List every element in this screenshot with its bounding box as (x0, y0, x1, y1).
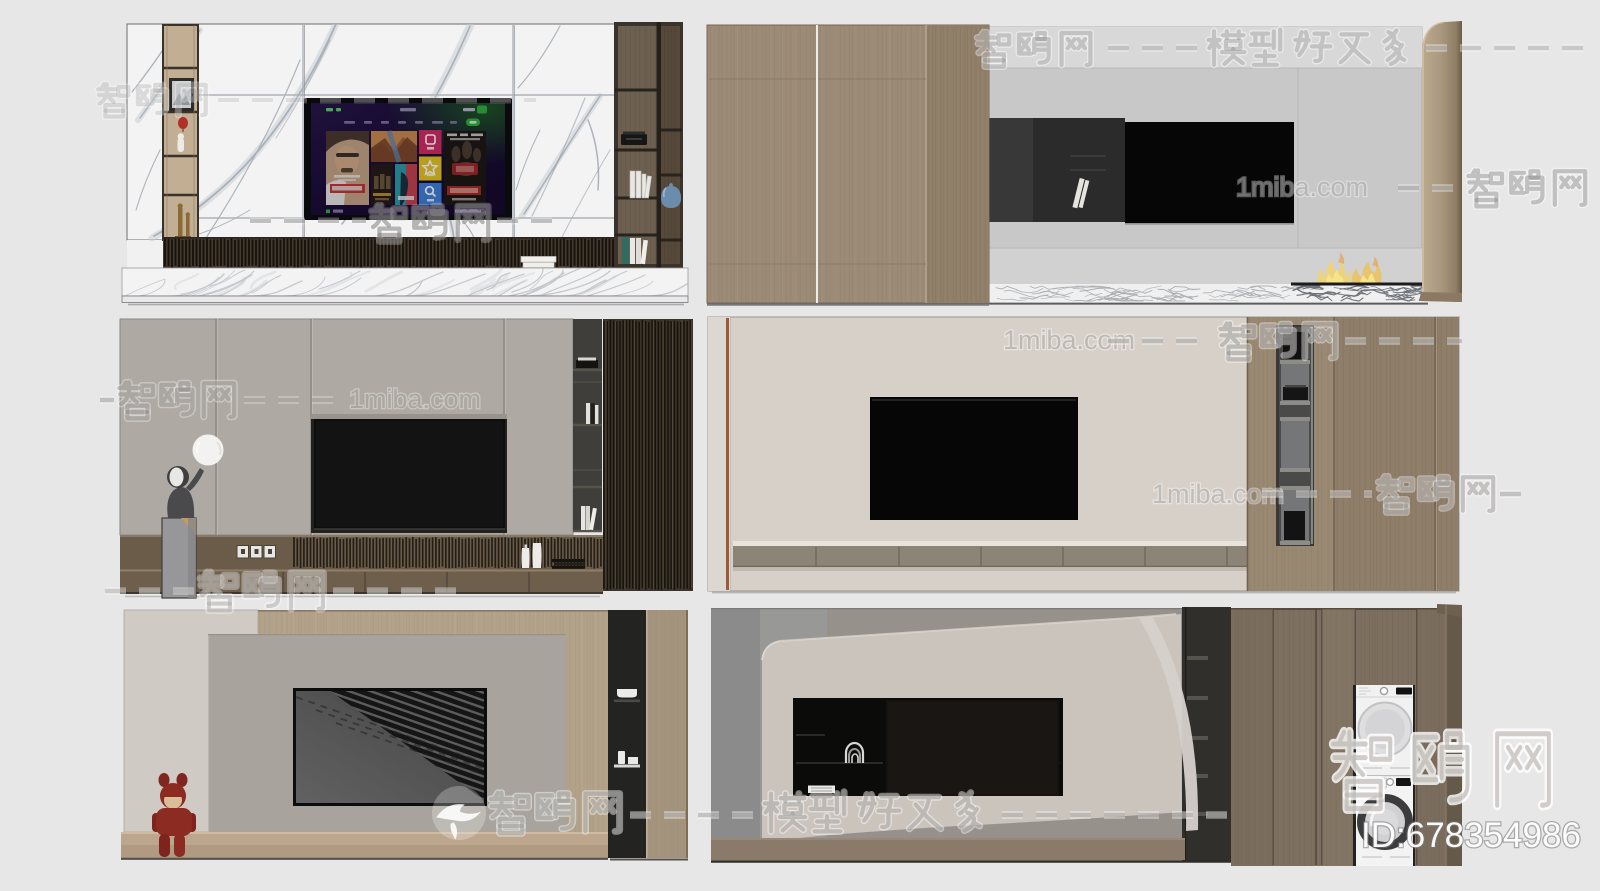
svg-text:1miba.com: 1miba.com (349, 384, 481, 414)
svg-text:1miba.com: 1miba.com (1236, 172, 1368, 202)
svg-text:ID:678354986: ID:678354986 (1361, 816, 1581, 855)
